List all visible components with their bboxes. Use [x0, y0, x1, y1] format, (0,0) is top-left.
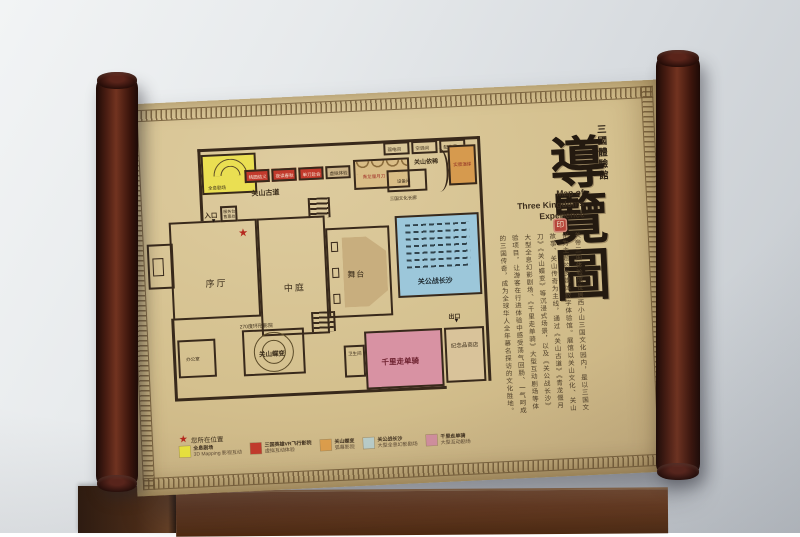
- floor-plan: 全息剧场 桃园结义 夜读春秋 单刀赴会 虚拟体验 关山古道 青龙偃月刀 弱电间 …: [147, 126, 498, 436]
- legend-line2: 大型全息幻影剧场: [378, 441, 418, 449]
- outer-wall-left-lower: [171, 319, 178, 401]
- room-label-office: 办公室: [186, 356, 200, 362]
- legend-line2: 3D Mapping 影视互动: [193, 450, 242, 458]
- exit-arrow-icon: ▼: [453, 318, 459, 324]
- room-label-vr-4: 虚拟体验: [329, 170, 347, 176]
- room-office: 办公室: [177, 339, 217, 379]
- room-vr-4: 虚拟体验: [325, 165, 351, 179]
- room-label-sword: 青龙偃月刀: [363, 173, 386, 180]
- service-desk-box: 服务台 售票处: [220, 205, 238, 222]
- legend-item-holo-mapping: 全息剧场 3D Mapping 影视互动: [179, 444, 242, 459]
- wooden-board-bottom: [176, 487, 668, 536]
- legend-text-4: 关公战长沙 大型全息幻影剧场: [377, 435, 418, 449]
- room-stage: 舞台: [325, 225, 393, 318]
- you-are-here-star-icon: ★: [238, 226, 248, 239]
- legend-text-1: 全息剧场 3D Mapping 影视互动: [193, 444, 242, 458]
- legend-swatch-pink-icon: [426, 434, 438, 446]
- room-label-battle-changsha: 关公战长沙: [418, 275, 453, 287]
- you-are-here-key-star-icon: ★: [179, 434, 188, 445]
- legend-text-2: 三国英雄VR飞行影院 虚拟互动体验: [264, 440, 311, 454]
- legend-text-5: 千里走单骑 大型互动剧场: [440, 433, 471, 446]
- room-souvenir-shop: 纪念品商店: [444, 326, 487, 383]
- room-label-vr-3: 单刀赴会: [302, 172, 320, 178]
- legend-line2: 虚拟互动体验: [265, 446, 312, 454]
- room-label-utility-1: 弱电间: [387, 147, 401, 153]
- stage-speaker-3: [333, 294, 340, 304]
- room-label-butterfly: 关山蝶变: [259, 347, 285, 358]
- stairs-bottom: [311, 311, 336, 332]
- ticket-label: 售票处: [223, 214, 235, 220]
- english-title: Map of Three Kingdoms Experience: [512, 187, 585, 223]
- room-utility-1: 弱电间: [383, 141, 410, 155]
- room-equipment: 设备间: [386, 169, 427, 193]
- stage-speaker-2: [332, 268, 339, 278]
- legend-swatch-yellow-icon: [179, 446, 191, 458]
- red-seal-stamp: 印: [553, 218, 568, 233]
- legend-swatch-red-icon: [251, 443, 263, 455]
- scroll-paper: 三國體驗館 導覽圖 Map of Three Kingdoms Experien…: [119, 79, 677, 496]
- room-battle-changsha: 关公战长沙: [395, 212, 483, 298]
- legend-line2: 弧幕影院: [335, 444, 355, 451]
- alcove-left: [147, 244, 175, 290]
- room-label-souvenir-shop: 纪念品商店: [451, 342, 479, 350]
- room-vr-3: 单刀赴会: [298, 166, 324, 180]
- entrance-arrow-icon: ▼: [211, 218, 217, 224]
- legend-text-3: 关山蝶变 弧幕影院: [334, 438, 355, 451]
- room-label-vr-1: 桃园结义: [249, 174, 267, 180]
- stage-speaker-1: [331, 242, 338, 252]
- service-desk-labels: 服务台 售票处: [223, 209, 235, 220]
- room-ride-alone: 千里走单骑: [364, 328, 445, 390]
- room-label-restroom: 卫生间: [348, 351, 362, 357]
- legend-item-vr-flight: 三国英雄VR飞行影院 虚拟互动体验: [251, 440, 312, 455]
- corridor-label-culture: 三国文化长廊: [390, 195, 417, 202]
- legend-item-interactive-theater: 千里走单骑 大型互动剧场: [426, 433, 471, 447]
- room-label-scene: 实景演绎: [453, 161, 471, 167]
- theater-seats-icon: [405, 222, 471, 269]
- room-label-lobby: 序厅: [205, 276, 228, 290]
- legend-item-arc-screen: 关山蝶变 弧幕影院: [320, 438, 355, 452]
- room-label-equipment: 设备间: [397, 178, 411, 184]
- room-label-utility-2: 空调间: [415, 145, 429, 151]
- room-label-vr-2: 夜读春秋: [275, 173, 293, 179]
- room-butterfly: 关山蝶变: [242, 327, 306, 376]
- scroll-roller-left: [96, 76, 138, 488]
- room-scene: 实景演绎: [447, 144, 477, 185]
- room-vr-1: 桃园结义: [244, 169, 270, 183]
- stairs-top: [308, 197, 331, 218]
- legend-swatch-orange-icon: [320, 439, 332, 451]
- legend-line2: 大型互动剧场: [441, 439, 471, 446]
- room-vr-2: 夜读春秋: [271, 168, 297, 182]
- room-restroom: 卫生间: [344, 345, 366, 378]
- legend-swatch-blue-icon: [363, 437, 375, 449]
- you-are-here-key-label: 您所在位置: [191, 433, 224, 445]
- outer-wall-bottom: [175, 386, 447, 402]
- you-are-here-key: ★ 您所在位置: [179, 432, 224, 445]
- legend-item-holo-phantom: 关公战长沙 大型全息幻影剧场: [363, 435, 418, 450]
- room-label-stage: 舞台: [347, 269, 365, 281]
- room-label-holo-theater: 全息剧场: [208, 184, 226, 190]
- room-label-atrium: 中庭: [284, 280, 307, 294]
- room-label-ride-alone: 千里走单骑: [381, 355, 419, 368]
- alcove-inner-box: [152, 258, 164, 276]
- scroll-roller-right: [656, 54, 700, 476]
- corridor-label-guanshan-road: 关山古道: [251, 187, 279, 198]
